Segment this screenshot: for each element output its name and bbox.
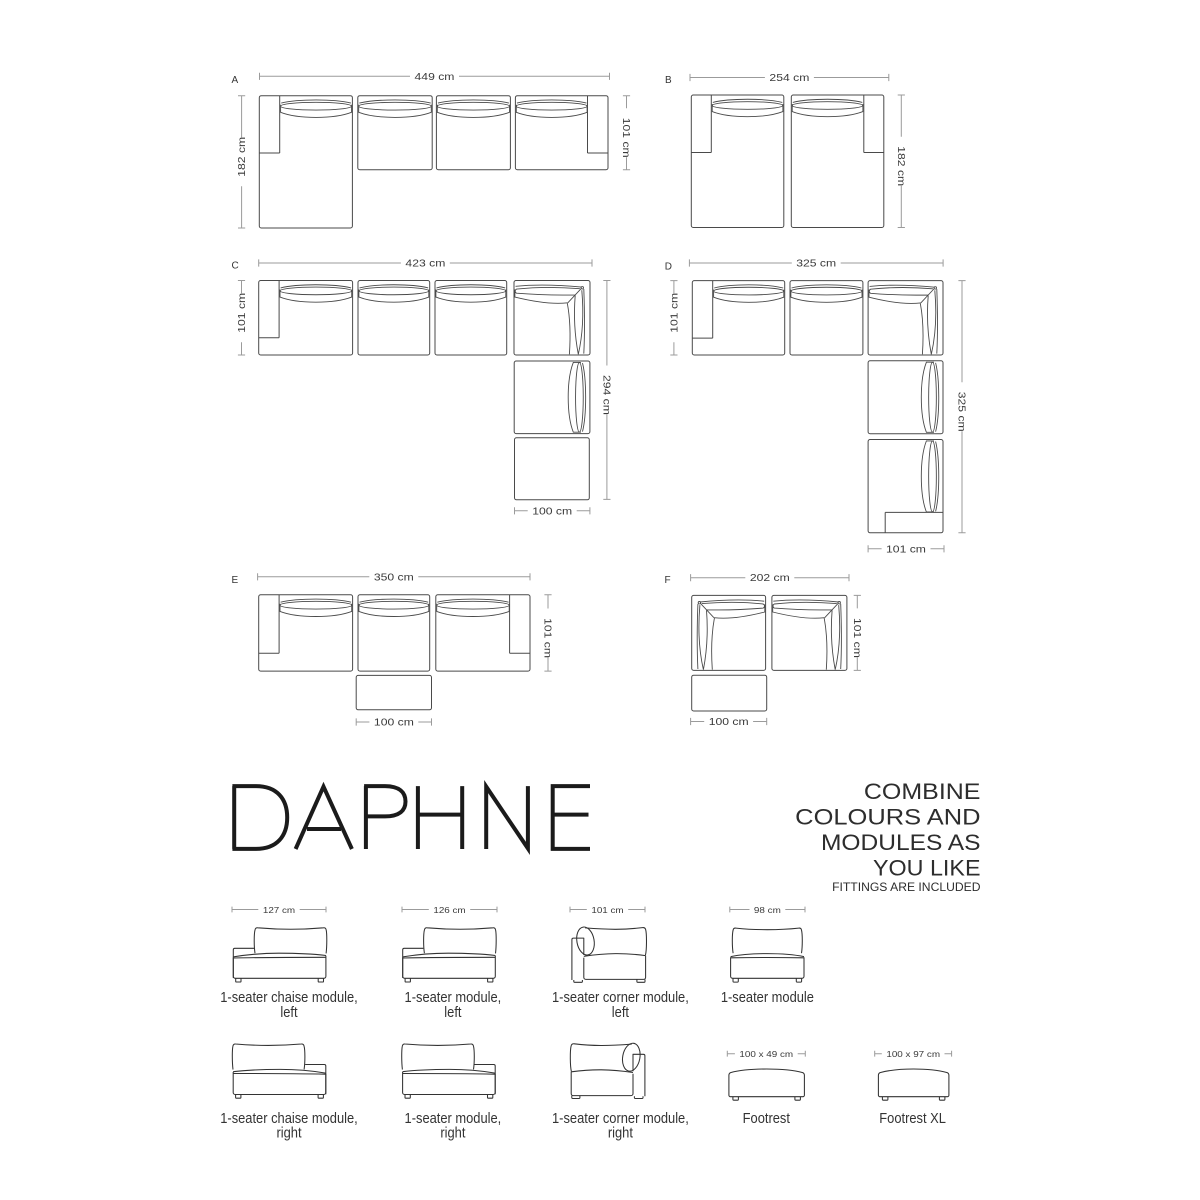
- svg-text:left: left: [612, 1004, 630, 1021]
- svg-text:101 cm: 101 cm: [851, 618, 863, 658]
- svg-text:MODULES AS: MODULES AS: [821, 830, 981, 855]
- svg-text:100 cm: 100 cm: [532, 505, 572, 517]
- svg-text:127 cm: 127 cm: [263, 905, 295, 915]
- svg-text:YOU LIKE: YOU LIKE: [873, 856, 981, 881]
- svg-text:101 cm: 101 cm: [236, 293, 248, 333]
- svg-text:left: left: [444, 1004, 462, 1021]
- svg-text:101 cm: 101 cm: [668, 293, 680, 333]
- svg-text:254 cm: 254 cm: [769, 72, 809, 84]
- svg-text:Footrest: Footrest: [743, 1110, 791, 1127]
- svg-text:325 cm: 325 cm: [956, 392, 968, 432]
- svg-text:D: D: [665, 262, 672, 273]
- svg-text:294 cm: 294 cm: [600, 375, 612, 415]
- svg-text:100 x 49 cm: 100 x 49 cm: [739, 1049, 793, 1059]
- svg-text:325 cm: 325 cm: [796, 258, 836, 270]
- svg-text:100 cm: 100 cm: [709, 716, 749, 728]
- svg-text:101 cm: 101 cm: [620, 118, 632, 158]
- svg-text:101 cm: 101 cm: [591, 905, 623, 915]
- svg-text:126 cm: 126 cm: [433, 905, 465, 915]
- svg-text:100 x 97 cm: 100 x 97 cm: [886, 1049, 940, 1059]
- svg-text:B: B: [665, 75, 672, 86]
- svg-text:C: C: [232, 261, 239, 272]
- svg-text:right: right: [440, 1125, 466, 1142]
- svg-text:449 cm: 449 cm: [415, 71, 455, 83]
- svg-text:A: A: [232, 75, 239, 86]
- svg-text:182 cm: 182 cm: [895, 146, 907, 186]
- svg-text:423 cm: 423 cm: [405, 258, 445, 270]
- svg-text:101 cm: 101 cm: [542, 618, 554, 658]
- svg-text:350 cm: 350 cm: [374, 571, 414, 583]
- svg-text:COMBINE: COMBINE: [864, 779, 981, 804]
- svg-text:FITTINGS ARE INCLUDED: FITTINGS ARE INCLUDED: [832, 882, 980, 894]
- svg-text:F: F: [665, 575, 671, 586]
- svg-text:1-seater module: 1-seater module: [721, 989, 814, 1006]
- svg-text:182 cm: 182 cm: [236, 137, 248, 177]
- svg-text:E: E: [232, 575, 239, 586]
- svg-text:right: right: [276, 1125, 302, 1142]
- svg-text:100 cm: 100 cm: [374, 717, 414, 729]
- svg-text:Footrest XL: Footrest XL: [879, 1110, 946, 1127]
- svg-text:98 cm: 98 cm: [754, 905, 781, 915]
- svg-text:left: left: [280, 1004, 298, 1021]
- svg-text:202 cm: 202 cm: [750, 572, 790, 584]
- svg-text:COLOURS AND: COLOURS AND: [795, 805, 980, 830]
- svg-text:101 cm: 101 cm: [886, 543, 926, 555]
- svg-text:right: right: [608, 1125, 634, 1142]
